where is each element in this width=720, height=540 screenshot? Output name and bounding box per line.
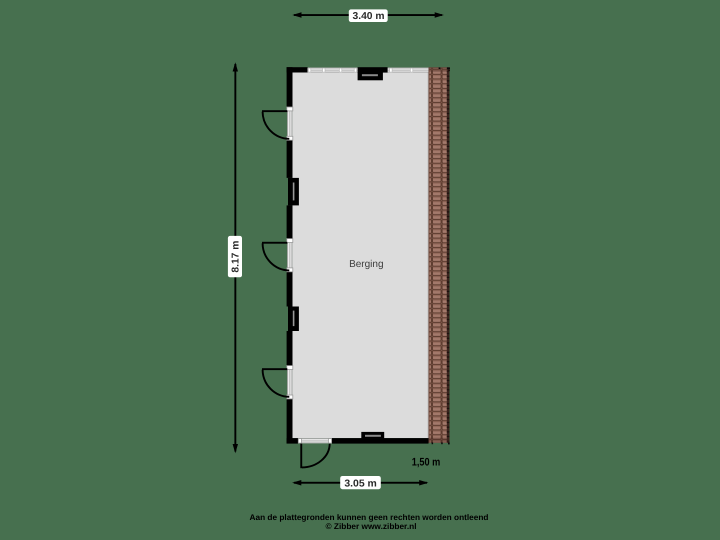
svg-text:8.17 m: 8.17 m	[231, 240, 242, 272]
svg-text:© Zibber www.zibber.nl: © Zibber www.zibber.nl	[326, 522, 417, 531]
svg-text:3.40 m: 3.40 m	[353, 11, 385, 22]
svg-text:Berging: Berging	[349, 259, 383, 270]
svg-text:3.05 m: 3.05 m	[344, 478, 377, 489]
svg-text:Aan de plattegronden kunnen ge: Aan de plattegronden kunnen geen rechten…	[250, 513, 489, 522]
svg-text:1,50 m: 1,50 m	[412, 456, 441, 468]
